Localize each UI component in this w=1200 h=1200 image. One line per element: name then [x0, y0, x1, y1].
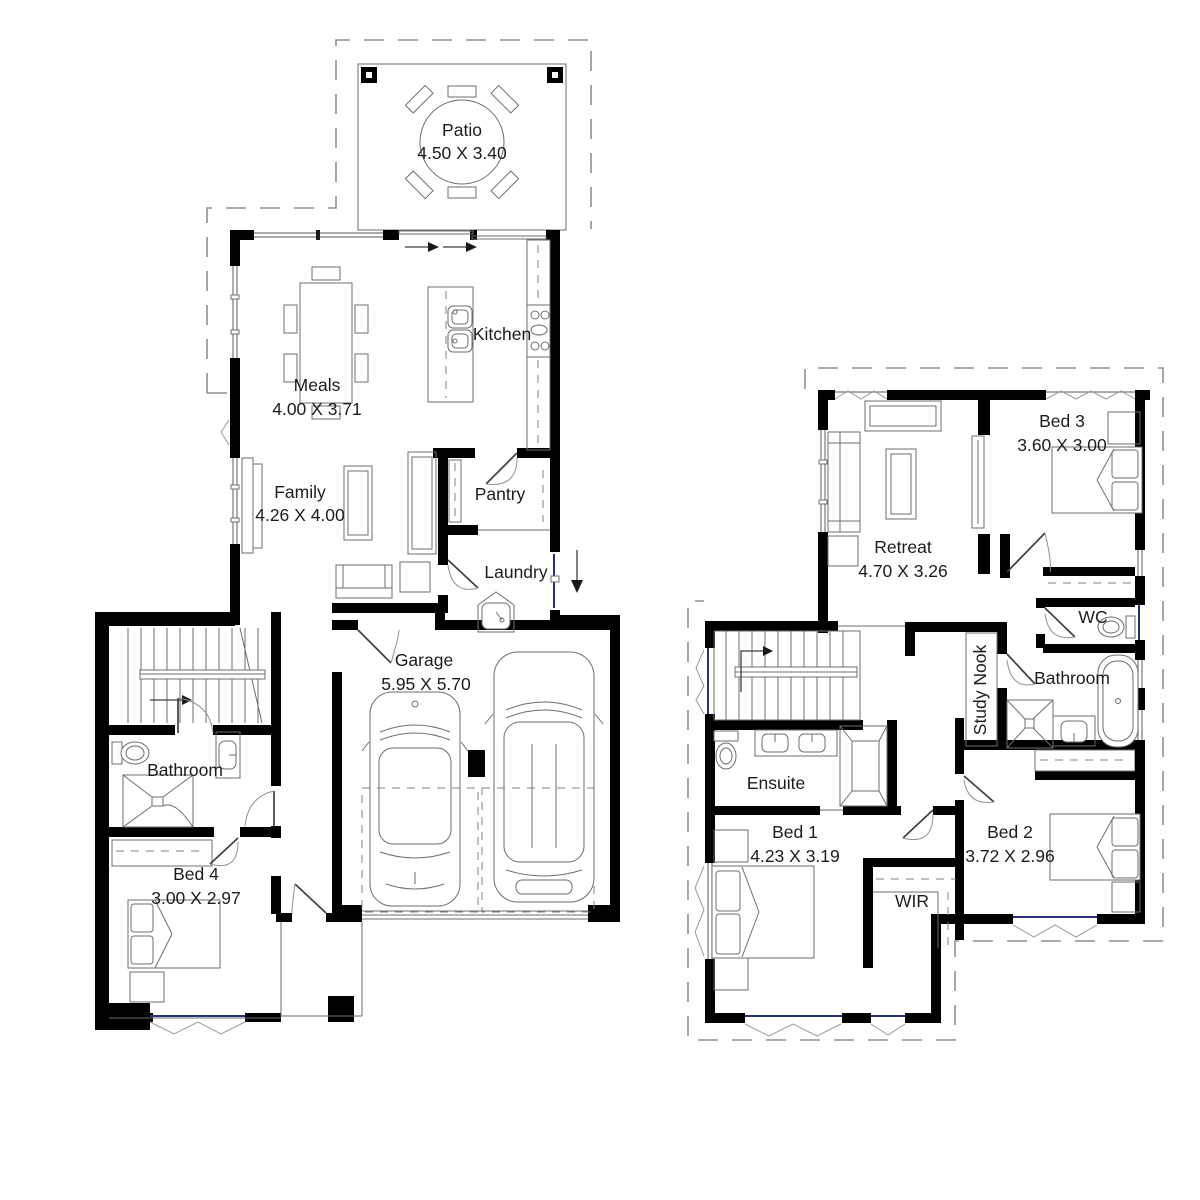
room-wc: WC	[1045, 607, 1135, 638]
retreat-dims: 4.70 X 3.26	[858, 561, 948, 581]
wir-label: WIR	[895, 891, 929, 911]
shower-icon	[123, 775, 193, 827]
bed3-label: Bed 3	[1039, 411, 1085, 431]
bed1-label: Bed 1	[772, 822, 818, 842]
car-bay	[482, 788, 594, 912]
double-vanity-icon	[755, 730, 837, 756]
room-kitchen: Kitchen	[428, 240, 550, 450]
tv-unit-icon	[865, 401, 941, 431]
laundry-arrow	[571, 550, 583, 593]
room-wir: WIR	[863, 858, 963, 968]
laundry-sink-icon	[478, 592, 514, 632]
bathroom-ground-label: Bathroom	[147, 760, 223, 780]
meals-label: Meals	[294, 375, 341, 395]
toilet-icon	[112, 742, 149, 764]
family-dims: 4.26 X 4.00	[255, 505, 345, 525]
floorplan-svg: Patio 4.50 X 3.40	[0, 0, 1200, 1200]
shower-icon	[840, 726, 887, 806]
robe-icon	[112, 840, 212, 866]
stairs-icon	[714, 631, 860, 720]
room-pantry: Pantry	[449, 453, 543, 522]
bed3-dims: 3.60 X 3.00	[1017, 435, 1107, 455]
stairs-icon	[128, 628, 265, 733]
kitchen-bench-icon	[527, 240, 550, 450]
study-nook-label: Study Nook	[970, 645, 990, 736]
wc-label: WC	[1078, 607, 1107, 627]
porch-post	[328, 996, 354, 1022]
car-icon	[485, 652, 603, 902]
bed-icon	[712, 866, 814, 958]
room-retreat: Retreat 4.70 X 3.26	[828, 401, 984, 581]
retreat-label: Retreat	[874, 537, 932, 557]
side-table-icon	[130, 972, 164, 1002]
bed1-dims: 4.23 X 3.19	[750, 846, 840, 866]
bed4-dims: 3.00 X 2.97	[151, 888, 241, 908]
kitchen-island-icon	[428, 287, 473, 402]
bathroom-first-label: Bathroom	[1034, 668, 1110, 688]
side-table-icon	[714, 958, 748, 990]
dining-table-icon	[284, 267, 368, 419]
ground-floor-plan: Patio 4.50 X 3.40	[95, 40, 620, 1034]
room-bed3: Bed 3 3.60 X 3.00	[1007, 411, 1142, 572]
room-meals: Meals 4.00 X 3.71	[272, 267, 368, 419]
garage-pier	[468, 750, 485, 777]
room-garage: Garage 5.95 X 5.70	[358, 630, 603, 919]
floorplan-canvas: Patio 4.50 X 3.40	[0, 0, 1200, 1200]
patio-label: Patio	[442, 120, 482, 140]
tv-icon	[972, 436, 984, 528]
room-family: Family 4.26 X 4.00	[242, 452, 436, 598]
rug-icon	[886, 449, 916, 519]
sofa-icon	[336, 565, 392, 598]
first-floor-plan: Retreat 4.70 X 3.26 Bed 3 3.60 X 3.00 WC	[688, 368, 1163, 1040]
garage-dims: 5.95 X 5.70	[381, 674, 471, 694]
room-patio: Patio 4.50 X 3.40	[358, 64, 566, 230]
toilet-icon	[714, 731, 738, 769]
bed2-label: Bed 2	[987, 822, 1033, 842]
patio-dims: 4.50 X 3.40	[417, 143, 507, 163]
bed-icon	[1050, 814, 1140, 880]
side-table-icon	[828, 536, 858, 566]
ottoman-icon	[400, 562, 430, 592]
slider-arrows	[405, 242, 477, 252]
pantry-label: Pantry	[475, 484, 526, 504]
room-ensuite: Ensuite	[714, 726, 887, 806]
bed-icon	[1052, 447, 1142, 513]
family-label: Family	[274, 482, 326, 502]
rug-icon	[344, 466, 372, 540]
garage-label: Garage	[395, 650, 453, 670]
room-bathroom-first: Bathroom	[1007, 654, 1138, 748]
laundry-label: Laundry	[484, 562, 547, 582]
kitchen-label: Kitchen	[473, 324, 531, 344]
cabinet-icon	[408, 452, 436, 554]
room-study-nook: Study Nook	[966, 633, 997, 746]
ensuite-label: Ensuite	[747, 773, 805, 793]
bed2-dims: 3.72 X 2.96	[965, 846, 1055, 866]
room-laundry: Laundry	[448, 530, 550, 632]
side-table-icon	[714, 830, 748, 862]
room-bed2: Bed 2 3.72 X 2.96	[964, 776, 1140, 912]
sofa-icon	[828, 432, 860, 532]
car-icon	[362, 692, 468, 906]
outdoor-table-icon	[405, 85, 518, 198]
bed-icon	[128, 900, 220, 968]
meals-dims: 4.00 X 3.71	[272, 399, 362, 419]
room-bathroom-ground: Bathroom	[112, 732, 274, 827]
bed4-label: Bed 4	[173, 864, 219, 884]
